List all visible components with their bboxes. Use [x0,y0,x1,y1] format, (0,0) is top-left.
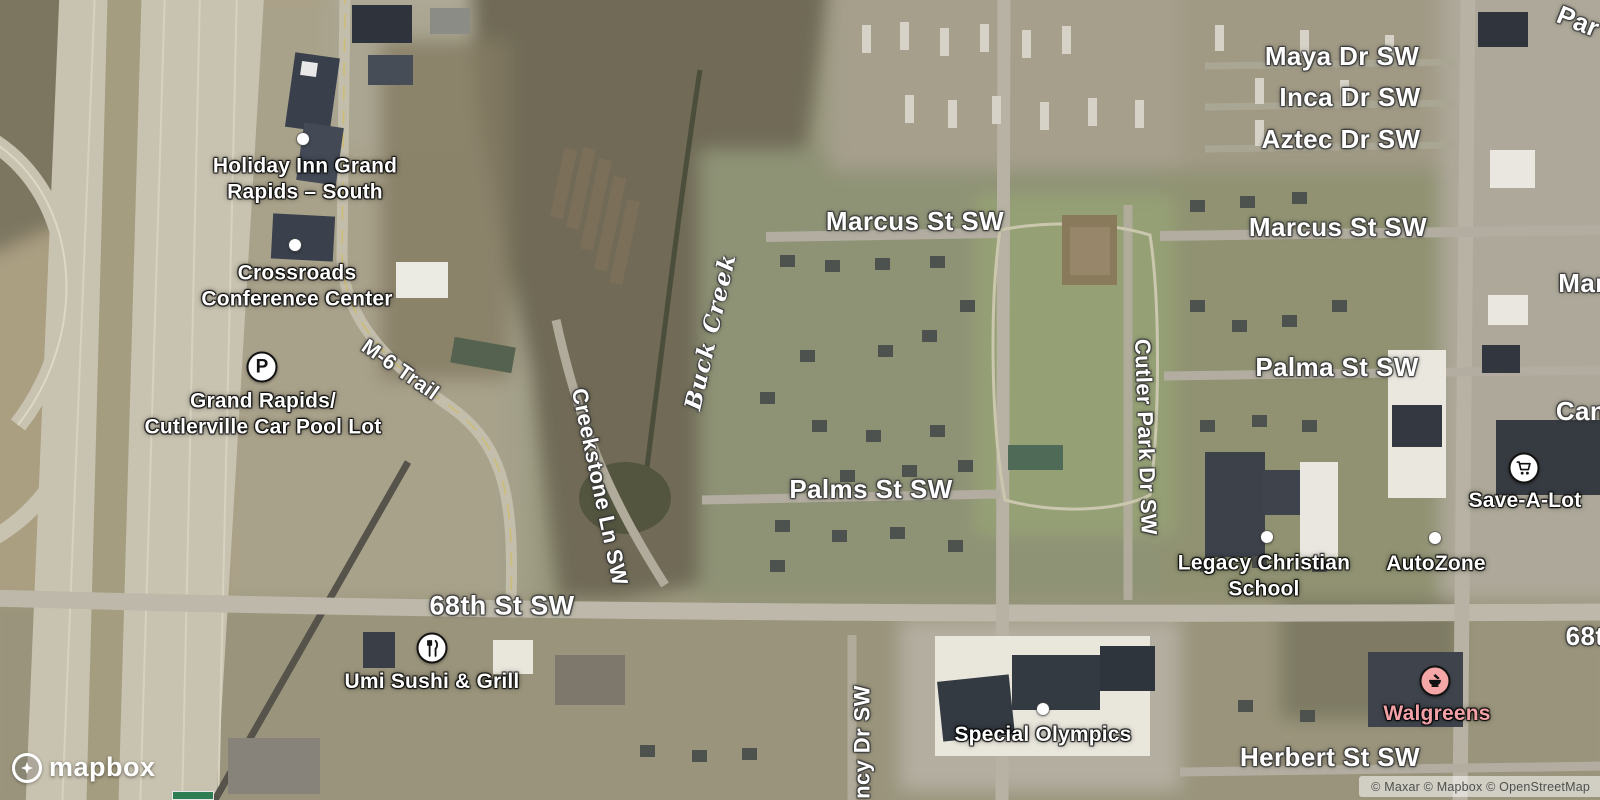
holiday-inn-marker[interactable] [297,133,309,145]
legacy-school-marker[interactable] [1261,531,1273,543]
satellite-imagery [0,0,1600,800]
route-sign-fragment [172,791,214,800]
umi-restaurant-marker[interactable] [417,633,448,664]
car-pool-parking-marker[interactable]: P [247,352,278,383]
map-canvas[interactable]: Maya Dr SWInca Dr SWAztec Dr SWMarcus St… [0,0,1600,800]
mapbox-logo[interactable]: mapbox [12,752,156,783]
autozone-marker[interactable] [1429,532,1441,544]
special-olympics-marker[interactable] [1037,703,1049,715]
mapbox-logo-icon [12,753,42,783]
walgreens-pharmacy-marker[interactable] [1420,666,1451,697]
crossroads-marker[interactable] [289,239,301,251]
map-attribution[interactable]: © Maxar © Mapbox © OpenStreetMap [1359,776,1600,797]
save-a-lot-grocery-marker[interactable] [1509,453,1540,484]
mapbox-wordmark: mapbox [49,752,156,783]
